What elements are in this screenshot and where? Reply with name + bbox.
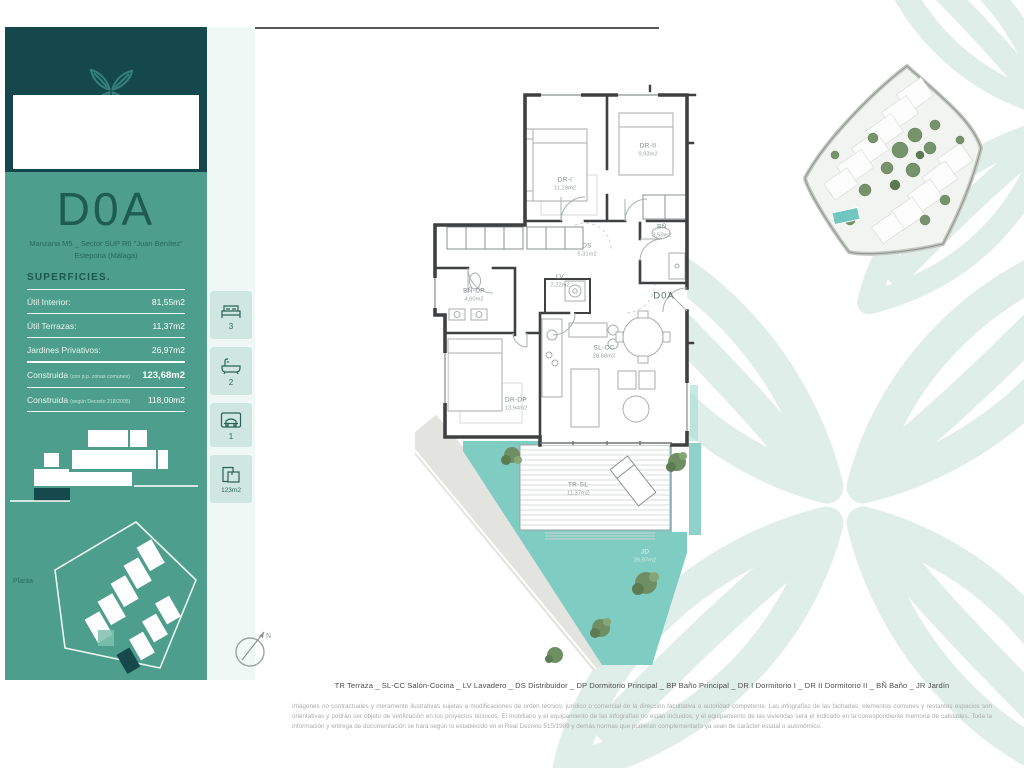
compass-north-label: N — [266, 633, 271, 640]
row-value: 118,00m2 — [148, 395, 185, 405]
floorplan-icon — [219, 465, 243, 485]
highlighted-unit-block — [34, 488, 70, 501]
room-label-drdp: DR-DP13,94m2 — [505, 395, 528, 412]
room-label-slcc: SL-CC28,68m2 — [593, 343, 616, 360]
car-garage-icon — [219, 410, 243, 430]
row-label: Útil Terrazas: — [27, 321, 76, 331]
row-value: 81,55m2 — [152, 297, 185, 307]
room-label-ds: DS5,31m2 — [577, 241, 596, 258]
row-value: 11,37m2 — [153, 321, 185, 331]
parking-count: 1 — [229, 432, 233, 441]
site-plan — [795, 60, 995, 262]
room-label-jd: JD26,97m2 — [634, 547, 657, 564]
table-row: Útil Interior: 81,55m2 — [27, 289, 185, 313]
mini-site-plan — [40, 518, 202, 678]
bath-icon — [219, 356, 243, 376]
room-label-dr2: DR-II9,93m2 — [638, 141, 657, 158]
bedrooms-count: 3 — [229, 322, 233, 331]
parking-stat: 1 — [210, 403, 252, 447]
area-stat: 123m2 — [210, 455, 252, 503]
logo-placeholder-box — [13, 95, 199, 169]
building-elevation-diagram — [10, 420, 200, 505]
stat-strip: 3 2 1 123m2 — [207, 27, 255, 680]
unit-location: Manzana M5 _ Sector SUP R6 "Juan Benítez… — [5, 238, 207, 261]
room-label-lv: LV2,22m2 — [550, 272, 569, 289]
compass-icon: N — [230, 626, 276, 672]
table-row: Jardines Privativos: 26,97m2 — [27, 337, 185, 361]
surfaces-title: SUPERFICIES. — [27, 272, 185, 289]
planta-label: Planta — [13, 578, 33, 585]
table-row-built-decree: Construida(según Decreto 218/2005) 118,0… — [27, 387, 185, 411]
row-value: 26,97m2 — [152, 345, 185, 355]
bedrooms-stat: 3 — [210, 291, 252, 339]
room-label-dr1: DR-I11,29m2 — [554, 175, 576, 192]
room-label-bndp: BÑ-DP4,60m2 — [463, 286, 485, 303]
room-label-trsl: TR-SL11,37m2 — [567, 480, 589, 497]
unit-code-title: D0A — [5, 182, 207, 236]
table-row-built: Construida(con p.p. zonas comunes) 123,6… — [27, 361, 185, 387]
table-row: Útil Terrazas: 11,37m2 — [27, 313, 185, 337]
surfaces-table: SUPERFICIES. Útil Interior: 81,55m2 Útil… — [27, 272, 185, 412]
brochure-page: D0A Manzana M5 _ Sector SUP R6 "Juan Ben… — [0, 0, 1024, 768]
row-label: Útil Interior: — [27, 297, 70, 307]
row-value: 123,68m2 — [142, 370, 185, 381]
legal-disclaimer: Imágenes no contractuales y meramente il… — [292, 702, 992, 731]
built-area-value: 123m2 — [221, 487, 241, 494]
unit-location-line1: Manzana M5 _ Sector SUP R6 "Juan Benítez… — [5, 238, 207, 250]
unit-location-line2: Estepona (Málaga) — [5, 250, 207, 262]
plan-unit-label: D0A — [653, 291, 674, 302]
row-label: Construida(según Decreto 218/2005) — [27, 395, 130, 405]
row-label: Jardines Privativos: — [27, 345, 101, 355]
bathrooms-stat: 2 — [210, 347, 252, 395]
row-label: Construida(con p.p. zonas comunes) — [27, 370, 130, 380]
terrace — [520, 445, 670, 539]
room-label-bn: BÑ3,59m2 — [652, 222, 671, 239]
floor-plan — [415, 83, 805, 673]
abbreviations-legend: TR Terraza _ SL-CC Salón-Cocina _ LV Lav… — [295, 681, 989, 690]
bathrooms-count: 2 — [229, 378, 233, 387]
bed-icon — [219, 300, 243, 320]
